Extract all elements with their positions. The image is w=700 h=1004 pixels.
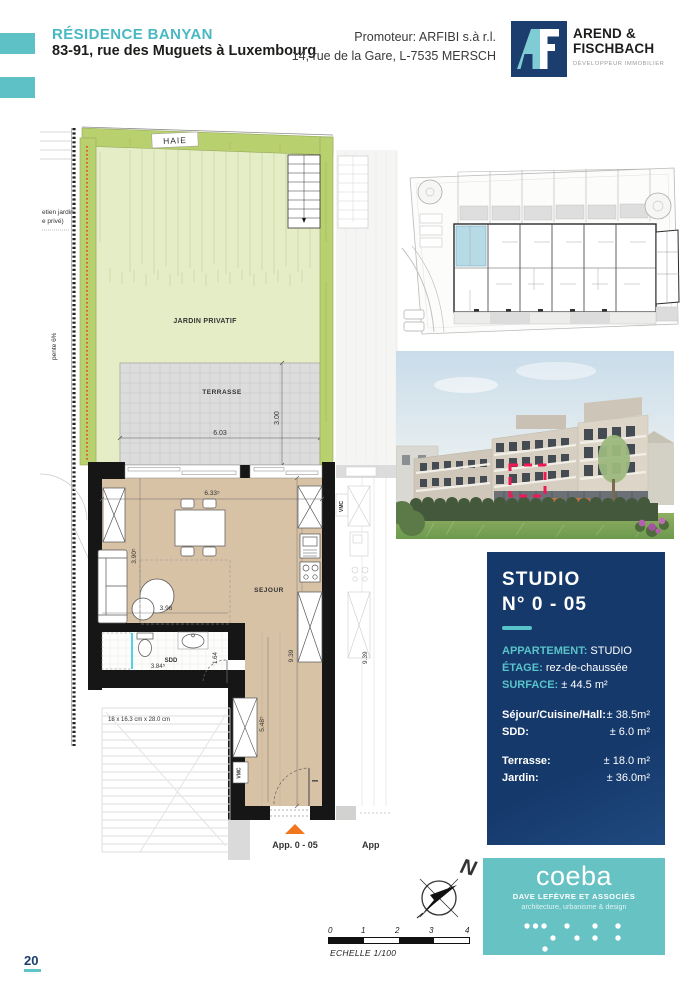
promoter-line2: 14, rue de la Gare, L-7535 MERSCH — [280, 47, 496, 66]
living-label: SEJOUR — [254, 587, 284, 594]
floor-plan: etien jardin e privé) pente 6% VMC 9.39 — [40, 122, 400, 862]
page-number: 20 — [24, 953, 41, 972]
brochure-page: RÉSIDENCE BANYAN 83-91, rue des Muguets … — [0, 0, 700, 1004]
terrace-depth-dim: 3.00 — [274, 411, 281, 425]
unit-info-card: STUDIO N° 0 - 05 APPARTEMENT: STUDIO ÉTA… — [487, 552, 665, 845]
unit-depth-dim: 9.39 — [288, 649, 295, 662]
developer-name-line2: FISCHBACH — [573, 42, 664, 57]
hedge-label-group: HAIE — [152, 132, 199, 148]
living-left-depth-dim: 3.90⁵ — [131, 548, 138, 564]
building-photo — [396, 351, 674, 539]
living-sub-width-dim: 3.96 — [160, 605, 173, 612]
promoter-line1: Promoteur: ARFIBI s.à r.l. — [280, 28, 496, 47]
page-number-value: 20 — [24, 953, 41, 968]
scale-tick-1: 1 — [361, 926, 365, 935]
scale-tick-2: 2 — [395, 926, 399, 935]
slope-note: pente 6% — [51, 332, 58, 360]
hedge-label: HAIE — [163, 135, 187, 146]
accent-bar — [502, 626, 532, 630]
unit-title-line2: N° 0 - 05 — [502, 593, 650, 618]
header-teal-square-1 — [0, 33, 35, 54]
spec-floor: ÉTAGE: rez-de-chaussée — [502, 660, 650, 677]
developer-name-line1: AREND & — [573, 27, 664, 42]
apartment-marker-icon — [285, 824, 305, 834]
neighbor-depth-dim: 9.39 — [362, 651, 369, 664]
braille-dots-icon — [483, 917, 665, 953]
area-terrace: Terrasse:± 18.0 m² — [502, 753, 650, 770]
architect-subtitle: DAVE LEFÈVRE ET ASSOCIÉS — [483, 892, 665, 901]
terrace-label: TERRASSE — [202, 389, 242, 396]
developer-logo-icon — [511, 21, 567, 77]
terrace-width-dim: 6.03 — [213, 430, 227, 437]
spec-apartment: APPARTEMENT: STUDIO — [502, 643, 650, 660]
garden-label: JARDIN PRIVATIF — [173, 318, 237, 325]
vmc-label: VMC — [237, 767, 243, 779]
scale-bar: 0 1 2 3 4 ECHELLE 1/100 — [328, 926, 474, 964]
architect-tagline: architecture, urbanisme & design — [483, 902, 665, 911]
sdd-label: SDD — [165, 658, 178, 664]
page-number-underline — [24, 969, 41, 972]
neighbor-vmc-label: VMC — [339, 501, 345, 513]
neighbor-marker-label: App — [362, 840, 380, 850]
developer-tagline: DÉVELOPPEUR IMMOBILIER — [573, 61, 664, 67]
project-address: 83-91, rue des Muguets à Luxembourg — [52, 43, 316, 59]
architect-logo: coeba DAVE LEFÈVRE ET ASSOCIÉS architect… — [483, 858, 665, 955]
project-title: RÉSIDENCE BANYAN — [52, 26, 213, 43]
header-teal-square-2 — [0, 77, 35, 98]
stair-note: 18 x 16.3 cm x 28.0 cm — [108, 717, 170, 723]
sdd-width-dim: 3.84⁵ — [151, 663, 166, 670]
scale-tick-4: 4 — [465, 926, 469, 935]
apartment-marker-label: App. 0 - 05 — [272, 840, 318, 850]
living-width-dim: 6.33⁵ — [204, 490, 220, 497]
scale-tick-3: 3 — [429, 926, 433, 935]
promoter-block: Promoteur: ARFIBI s.à r.l. 14, rue de la… — [280, 28, 496, 66]
af-monogram-icon — [511, 21, 567, 77]
site-plan-unit-highlight — [456, 226, 486, 266]
boundary-note-line2: e privé) — [42, 218, 64, 225]
site-plan — [400, 162, 684, 342]
area-living: Séjour/Cuisine/Hall:± 38.5m² — [502, 707, 650, 724]
scale-tick-0: 0 — [328, 926, 332, 935]
developer-name-block: AREND & FISCHBACH DÉVELOPPEUR IMMOBILIER — [573, 27, 664, 67]
compass-icon: N — [413, 850, 485, 928]
architect-name: coeba — [483, 861, 665, 892]
sdd-depth-dim: 1.64 — [213, 652, 219, 664]
spec-surface: SURFACE: ± 44.5 m² — [502, 677, 650, 694]
hall-depth-dim: 5.48⁵ — [259, 716, 266, 732]
kitchen-units — [298, 486, 322, 662]
scale-caption: ECHELLE 1/100 — [330, 948, 396, 958]
unit-title-line1: STUDIO — [502, 568, 650, 593]
boundary-note-line1: etien jardin — [42, 209, 74, 216]
compass-north-label: N — [458, 855, 479, 881]
area-garden: Jardin:± 36.0m² — [502, 770, 650, 787]
area-sdd: SDD:± 6.0 m² — [502, 724, 650, 741]
scale-bar-segments — [328, 937, 470, 944]
